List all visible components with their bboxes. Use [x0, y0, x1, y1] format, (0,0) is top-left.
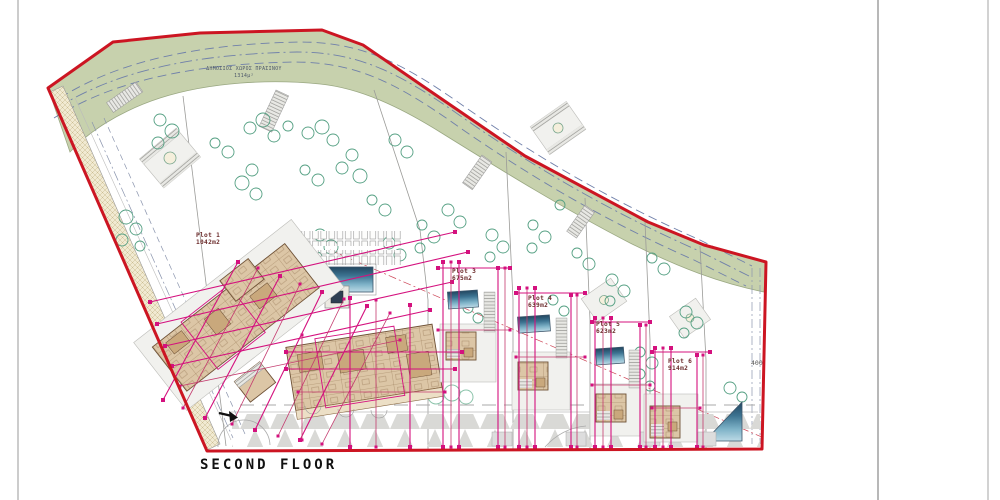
green-space-area: 1314μ²: [234, 73, 254, 79]
plot4-area: 639m2: [528, 302, 548, 309]
plot1-name: Plot 1: [196, 232, 220, 239]
plot3-area: 675m2: [452, 275, 472, 282]
floor-title: SECOND FLOOR: [200, 457, 337, 473]
plot1-area: 1042m2: [196, 239, 220, 246]
site-plan-drawing: ΔΗΜΟΣΙΟΣ ΧΩΡΟΣ ΠΡΑΣΙΝΟΥ 1314μ² Plot 1 10…: [0, 0, 1000, 500]
site-plan-sheet: ΔΗΜΟΣΙΟΣ ΧΩΡΟΣ ΠΡΑΣΙΝΟΥ 1314μ² Plot 1 10…: [0, 0, 1000, 500]
green-space-label: ΔΗΜΟΣΙΟΣ ΧΩΡΟΣ ΠΡΑΣΙΝΟΥ: [206, 66, 282, 72]
plot4-name: Plot 4: [528, 295, 552, 302]
plot6-area: 914m2: [668, 365, 688, 372]
plot5-area: 623m2: [596, 328, 616, 335]
road-width-label: 400: [751, 359, 763, 367]
plot5-name: Plot 5: [596, 321, 620, 328]
plot6-name: Plot 6: [668, 358, 692, 365]
plot3-name: Plot 3: [452, 268, 476, 275]
villa-plot6: [644, 394, 742, 446]
